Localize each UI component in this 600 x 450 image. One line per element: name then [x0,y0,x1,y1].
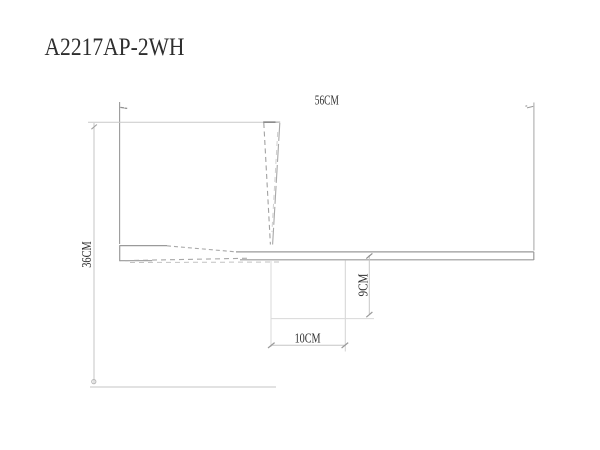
svg-text:10CM: 10CM [295,331,321,346]
svg-text:56CM: 56CM [315,94,339,109]
svg-text:A2217AP-2WH: A2217AP-2WH [45,34,185,61]
svg-text:36CM: 36CM [80,241,95,268]
svg-text:9CM: 9CM [356,273,371,296]
